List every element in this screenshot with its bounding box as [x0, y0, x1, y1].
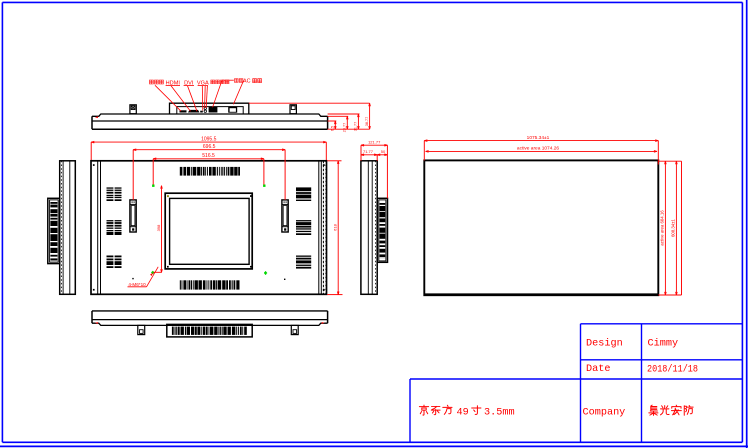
svg-text:active area 604.16: active area 604.16 — [660, 210, 665, 246]
svg-text:516.5: 516.5 — [202, 153, 215, 159]
svg-text:Company: Company — [583, 407, 626, 418]
svg-text:2018/11/18: 2018/11/18 — [647, 364, 698, 376]
svg-text:Design: Design — [586, 337, 623, 349]
svg-text:31.77: 31.77 — [354, 122, 358, 132]
svg-text:49: 49 — [457, 407, 469, 418]
svg-text:Cimmy: Cimmy — [648, 337, 679, 349]
svg-text:active area 1074.26: active area 1074.26 — [517, 146, 559, 152]
svg-text:1075.34±1: 1075.34±1 — [527, 135, 550, 141]
svg-text:121.77: 121.77 — [368, 140, 381, 145]
svg-text:38.77: 38.77 — [365, 117, 369, 127]
svg-text:3.5mm: 3.5mm — [484, 407, 515, 418]
svg-text:398: 398 — [156, 224, 161, 231]
svg-text:618: 618 — [332, 223, 337, 230]
svg-text:23.77: 23.77 — [343, 123, 347, 133]
svg-text:6.5: 6.5 — [331, 126, 335, 131]
svg-text:50: 50 — [381, 149, 386, 154]
svg-text:71.77: 71.77 — [363, 149, 374, 154]
svg-text:1095.5: 1095.5 — [201, 136, 217, 142]
svg-text:608.34±1: 608.34±1 — [671, 218, 676, 237]
svg-text:696.5: 696.5 — [203, 144, 216, 150]
svg-text:Date: Date — [586, 364, 610, 375]
svg-text:4-M6*10: 4-M6*10 — [128, 282, 146, 287]
svg-text:AC: AC — [243, 79, 251, 85]
